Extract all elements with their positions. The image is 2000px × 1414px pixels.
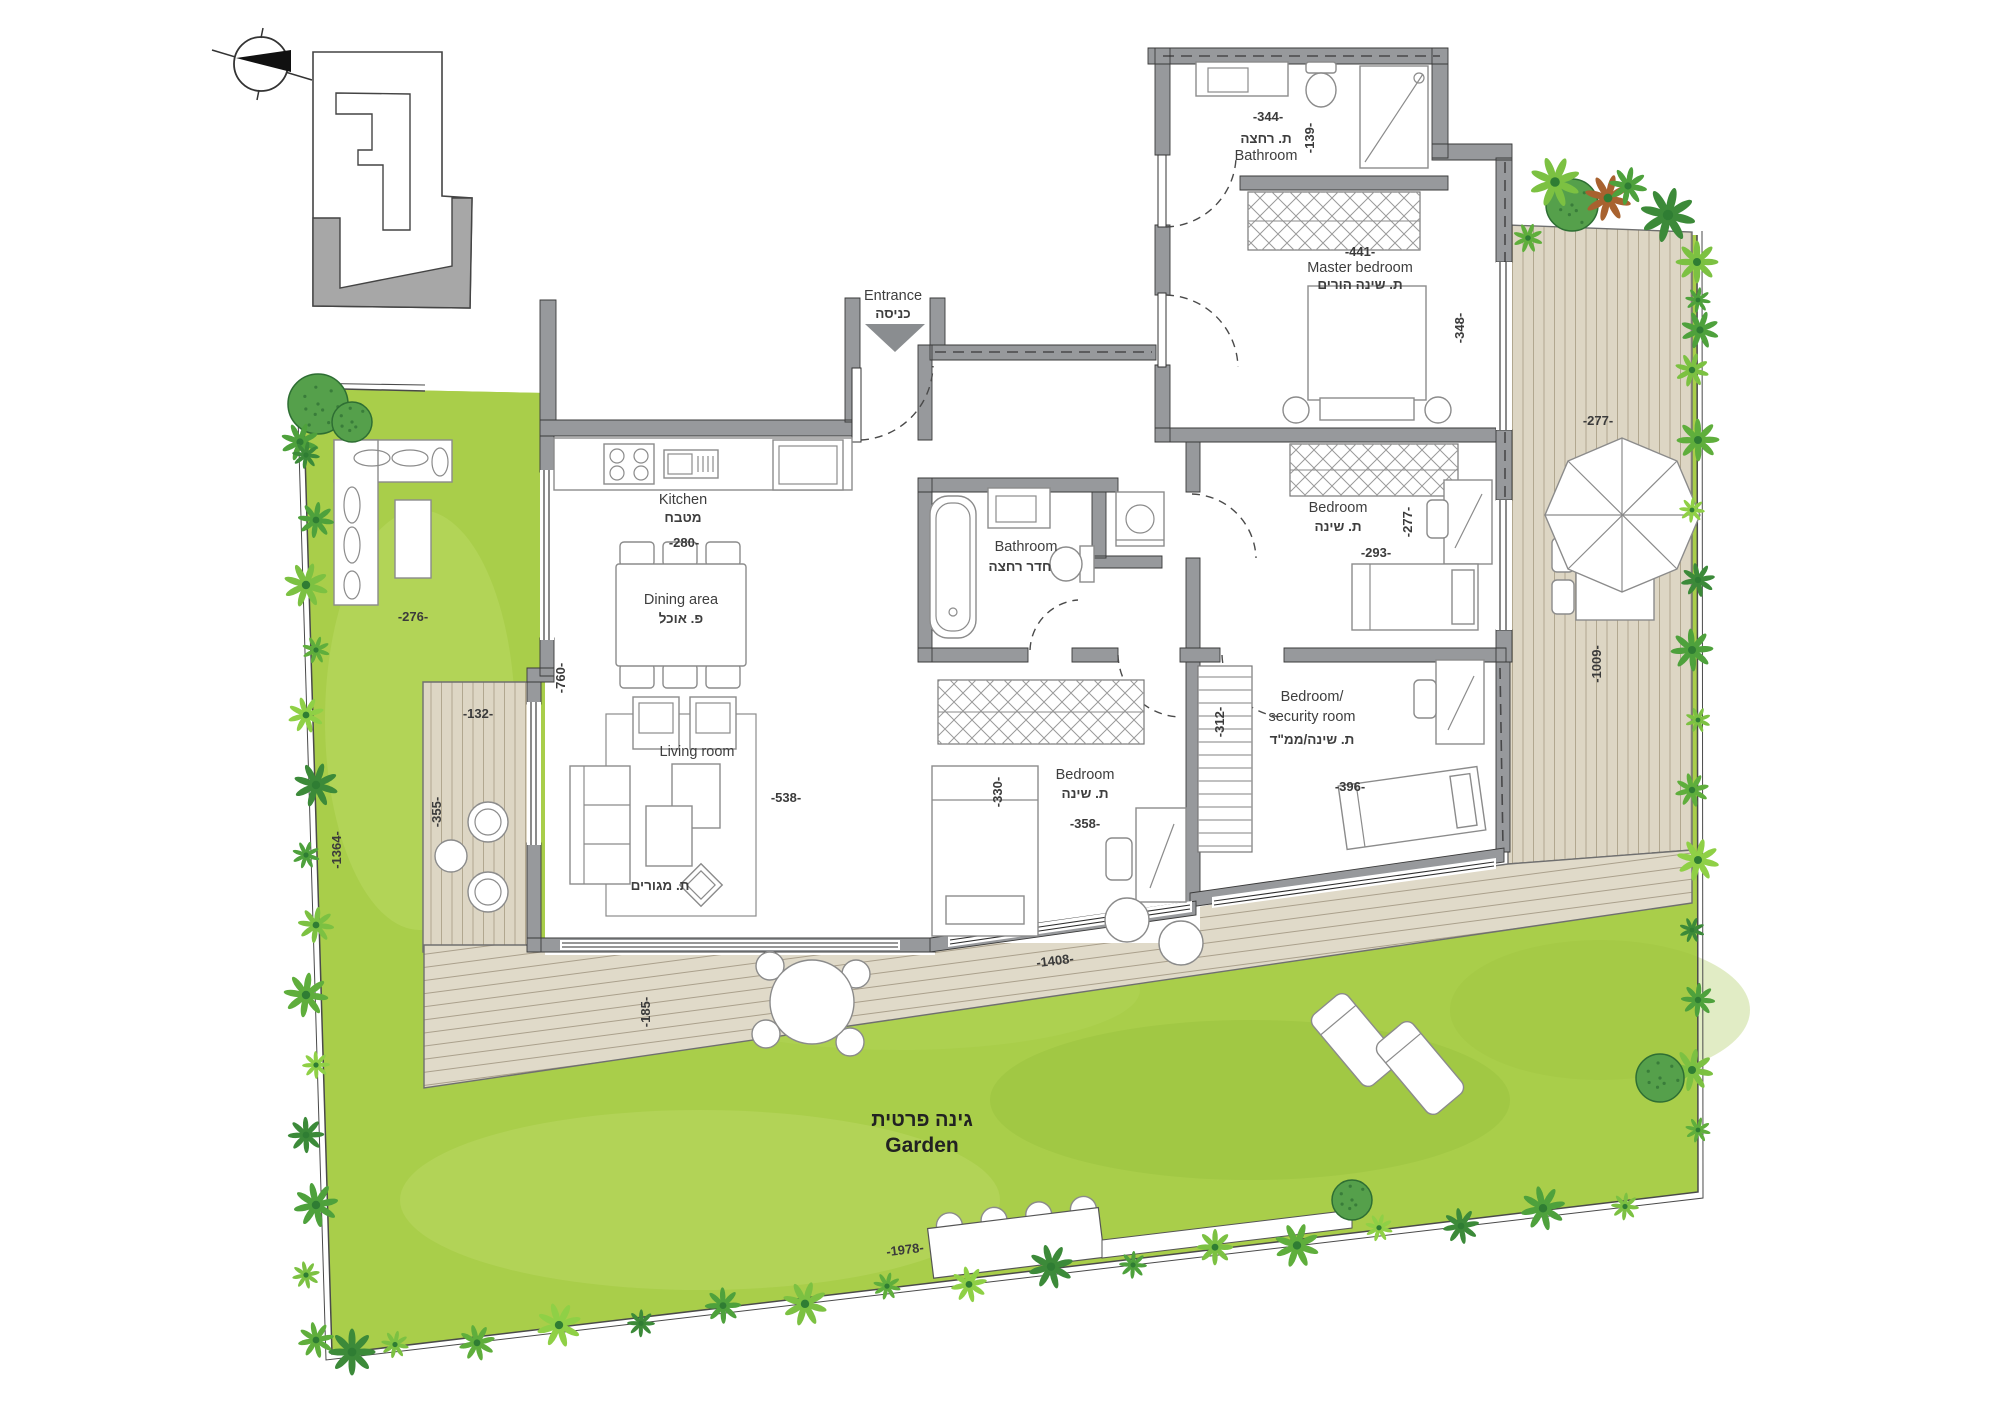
garden-label-he: גינה פרטית: [871, 1109, 973, 1131]
floor-plan-page: Entrance כניסה -344- ת. רחצה Bathroom -1…: [0, 0, 2000, 1414]
security-dim-h: -312-: [1212, 707, 1227, 737]
bedroom-right-dim-h: -277-: [1400, 507, 1415, 537]
kitchen-label-he: מטבח: [664, 510, 701, 525]
bedroom-right-label-he: ת. שינה: [1314, 519, 1361, 534]
bedroom-right-dim-w: -293-: [1361, 545, 1391, 560]
bedroom-mid-dim-w: -358-: [1070, 816, 1100, 831]
bedroom-mid-label-he: ת. שינה: [1061, 786, 1108, 801]
living-dim-w: -538-: [771, 790, 801, 805]
kitchen-counter: [554, 438, 852, 490]
living-label-en: Living room: [660, 744, 735, 760]
entrance-label-he: כניסה: [875, 306, 911, 321]
garden-dim-width: -276-: [398, 609, 428, 624]
bedroom-mid-closet: [938, 680, 1144, 744]
garden-dim-left: -1364-: [329, 831, 344, 869]
living-dim-h: -760-: [553, 663, 568, 693]
master-dim-h: -348-: [1452, 313, 1467, 343]
living-label-he: ת. מגורים: [631, 878, 690, 893]
security-dim-w: -396-: [1335, 779, 1365, 794]
bath-top-label-en: Bathroom: [1235, 148, 1298, 164]
bedroom-mid-label-en: Bedroom: [1056, 767, 1115, 783]
kitchen-dim: -280-: [669, 535, 699, 550]
kitchen-label-en: Kitchen: [659, 492, 707, 508]
bedroom-right-closet: [1290, 444, 1458, 496]
security-shelf: [1198, 666, 1252, 852]
dining-label-en: Dining area: [644, 592, 719, 608]
garden-label-en: Garden: [885, 1134, 959, 1157]
security-label-en2: security room: [1268, 709, 1355, 725]
master-dim-w: -441-: [1345, 244, 1375, 259]
washing-machine: [1116, 492, 1164, 546]
deck-right-dim-h: -1009-: [1589, 645, 1604, 683]
bath-mid-label-he: חדר רחצה: [988, 559, 1051, 574]
deck-bottom-dim-h: -185-: [638, 997, 653, 1027]
security-label-en1: Bedroom/: [1281, 689, 1345, 705]
deck-right-dim-w: -277-: [1583, 413, 1613, 428]
master-label-en: Master bedroom: [1307, 260, 1413, 276]
master-label-he: ת. שינה הורים: [1317, 277, 1402, 292]
key-plan: [313, 52, 472, 308]
bath-mid-label-en: Bathroom: [995, 539, 1058, 555]
north-compass-icon: [212, 28, 312, 100]
entrance-label-en: Entrance: [864, 288, 922, 304]
bedroom-mid-dim-h: -330-: [990, 777, 1005, 807]
deck-left-dim-h: -355-: [429, 797, 444, 827]
deck-left-dim-w: -132-: [463, 706, 493, 721]
bath-top-dim-w: -344-: [1253, 109, 1283, 124]
master-closet: [1248, 192, 1420, 250]
umbrella-icon: [1545, 438, 1700, 592]
dining-label-he: פ. אוכל: [659, 611, 704, 626]
bedroom-right-label-en: Bedroom: [1309, 500, 1368, 516]
bath-top-dim-h: -139-: [1302, 123, 1317, 153]
bath-top-label-he: ת. רחצה: [1240, 131, 1291, 146]
security-label-he: ת. שינה/ממ"ד: [1270, 732, 1355, 747]
